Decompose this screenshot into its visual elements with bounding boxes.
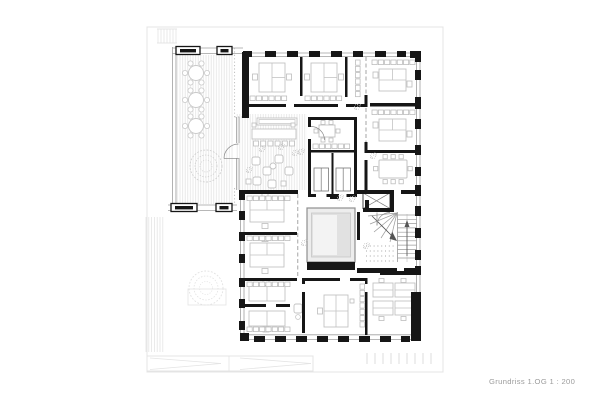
architectural-plan-page: Grundriss 1.OG 1 : 200 [0, 0, 600, 401]
plan-caption: Grundriss 1.OG 1 : 200 [489, 377, 575, 386]
floor-plan-drawing [0, 0, 600, 401]
atrium-lightwell [307, 208, 355, 262]
